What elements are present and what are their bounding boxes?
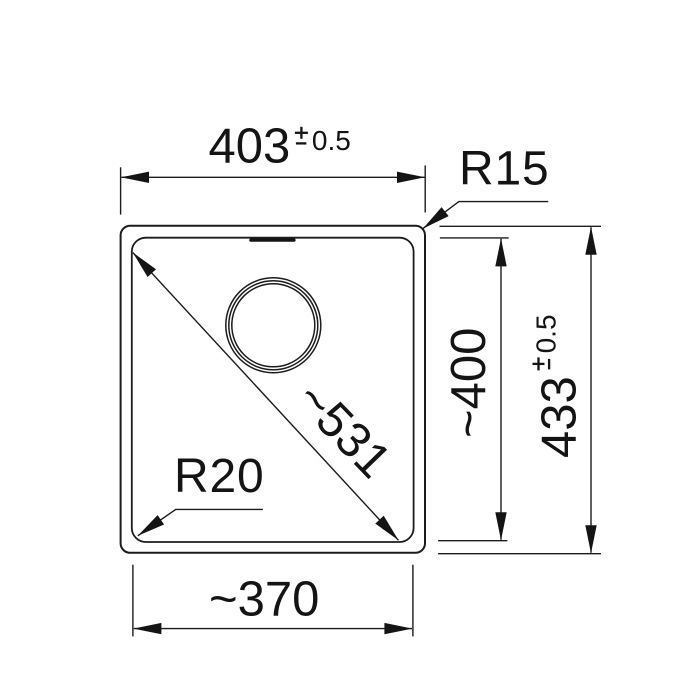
svg-text:403: 403 [209, 120, 291, 174]
svg-text:~400: ~400 [442, 328, 496, 438]
svg-text:R20: R20 [174, 450, 264, 503]
svg-text:~370: ~370 [209, 573, 319, 627]
svg-text:R15: R15 [459, 143, 549, 196]
svg-text:0.5: 0.5 [531, 314, 562, 353]
svg-text:433: 433 [533, 376, 587, 458]
svg-text:0.5: 0.5 [312, 125, 351, 156]
